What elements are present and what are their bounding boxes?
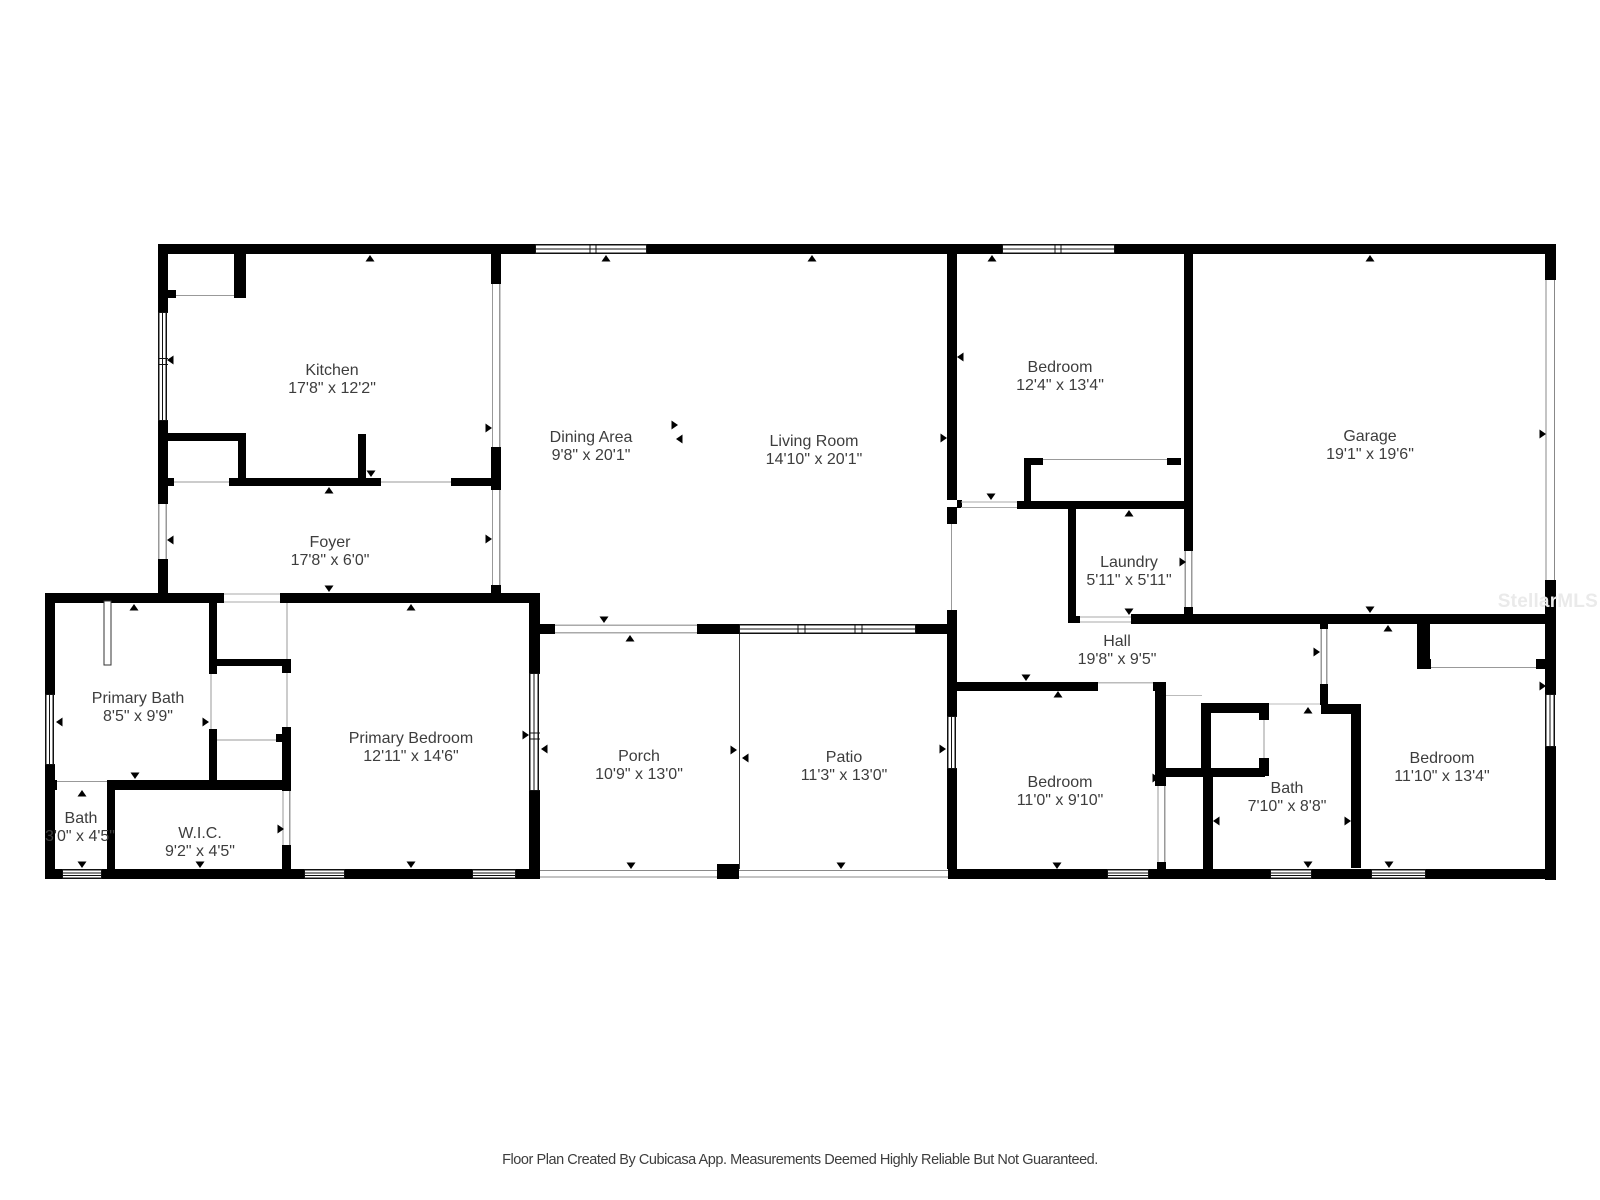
svg-text:9'8" x 20'1": 9'8" x 20'1" bbox=[552, 447, 631, 464]
svg-text:Dining Area: Dining Area bbox=[550, 429, 633, 446]
svg-text:Kitchen: Kitchen bbox=[305, 362, 358, 379]
svg-text:Foyer: Foyer bbox=[310, 534, 352, 551]
svg-text:Porch: Porch bbox=[618, 748, 660, 765]
svg-text:11'3" x 13'0": 11'3" x 13'0" bbox=[801, 767, 888, 784]
svg-text:Bedroom: Bedroom bbox=[1028, 774, 1093, 791]
svg-text:7'10" x 8'8": 7'10" x 8'8" bbox=[1248, 798, 1327, 815]
svg-text:Bath: Bath bbox=[1271, 780, 1304, 797]
svg-text:9'2" x 4'5": 9'2" x 4'5" bbox=[165, 843, 235, 860]
svg-text:Bath: Bath bbox=[65, 810, 98, 827]
svg-text:5'11" x 5'11": 5'11" x 5'11" bbox=[1086, 572, 1171, 589]
svg-text:Bedroom: Bedroom bbox=[1028, 359, 1093, 376]
svg-text:17'8" x 12'2": 17'8" x 12'2" bbox=[288, 380, 376, 397]
svg-text:Living Room: Living Room bbox=[770, 433, 859, 450]
svg-text:Laundry: Laundry bbox=[1100, 554, 1158, 571]
svg-text:W.I.C.: W.I.C. bbox=[178, 825, 222, 842]
svg-text:19'1" x 19'6": 19'1" x 19'6" bbox=[1326, 446, 1414, 463]
svg-text:11'10" x 13'4": 11'10" x 13'4" bbox=[1394, 768, 1489, 785]
svg-text:Garage: Garage bbox=[1343, 428, 1396, 445]
svg-text:Hall: Hall bbox=[1103, 633, 1131, 650]
svg-text:12'4" x 13'4": 12'4" x 13'4" bbox=[1016, 377, 1104, 394]
svg-text:Primary Bath: Primary Bath bbox=[92, 690, 184, 707]
svg-text:3'0" x 4'5": 3'0" x 4'5" bbox=[45, 828, 115, 845]
svg-text:10'9" x 13'0": 10'9" x 13'0" bbox=[595, 766, 683, 783]
svg-text:StellarMLS: StellarMLS bbox=[1498, 591, 1598, 612]
svg-text:19'8" x 9'5": 19'8" x 9'5" bbox=[1078, 651, 1157, 668]
svg-text:Primary Bedroom: Primary Bedroom bbox=[349, 730, 473, 747]
svg-text:11'0" x 9'10": 11'0" x 9'10" bbox=[1017, 792, 1104, 809]
svg-text:Patio: Patio bbox=[826, 749, 863, 766]
svg-text:Floor Plan Created By Cubicasa: Floor Plan Created By Cubicasa App. Meas… bbox=[502, 1152, 1098, 1168]
svg-text:14'10" x 20'1": 14'10" x 20'1" bbox=[766, 451, 863, 468]
svg-text:Bedroom: Bedroom bbox=[1410, 750, 1475, 767]
svg-text:8'5" x 9'9": 8'5" x 9'9" bbox=[103, 708, 173, 725]
svg-text:17'8" x 6'0": 17'8" x 6'0" bbox=[291, 552, 370, 569]
svg-text:12'11" x 14'6": 12'11" x 14'6" bbox=[363, 748, 458, 765]
